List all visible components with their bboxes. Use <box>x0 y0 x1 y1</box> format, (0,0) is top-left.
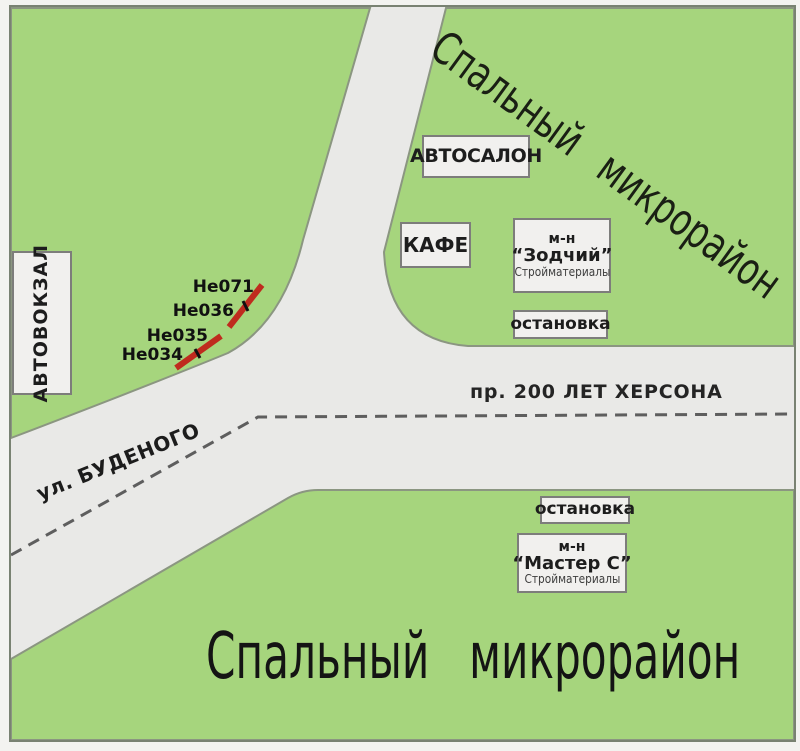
store-master-box: м-н “Мастер С” Стройматериалы <box>517 533 627 593</box>
marker-label-he035: He035 <box>147 326 208 346</box>
city-map: Спальный микрорайон Спальный микрорайон … <box>0 0 800 751</box>
marker-label-he071: He071 <box>193 277 254 297</box>
car-dealership-label: АВТОСАЛОН <box>410 147 542 167</box>
bus-stop-north-label: остановка <box>510 316 610 334</box>
store-zodchiy-subtitle: Стройматериалы <box>514 266 610 279</box>
bus-terminal-label: АВТОВОКЗАЛ <box>32 244 52 402</box>
store-zodchiy-name: “Зодчий” <box>512 247 613 266</box>
store-zodchiy-box: м-н “Зодчий” Стройматериалы <box>513 218 611 293</box>
district-title-bottom: Спальный микрорайон <box>206 620 740 694</box>
bus-stop-south-label: остановка <box>535 501 635 519</box>
marker-label-he034: He034 <box>122 345 183 365</box>
cafe-box: КАФЕ <box>400 222 471 268</box>
bus-stop-north-box: остановка <box>513 310 608 339</box>
store-master-name: “Мастер С” <box>512 555 631 574</box>
bus-stop-south-box: остановка <box>540 496 630 524</box>
cafe-label: КАФЕ <box>403 235 468 256</box>
marker-label-he036: He036 <box>173 301 234 321</box>
car-dealership-box: АВТОСАЛОН <box>422 135 530 178</box>
bus-terminal-box: АВТОВОКЗАЛ <box>12 251 72 395</box>
avenue-label: пр. 200 ЛЕТ ХЕРСОНА <box>470 381 723 403</box>
store-master-subtitle: Стройматериалы <box>524 573 620 586</box>
